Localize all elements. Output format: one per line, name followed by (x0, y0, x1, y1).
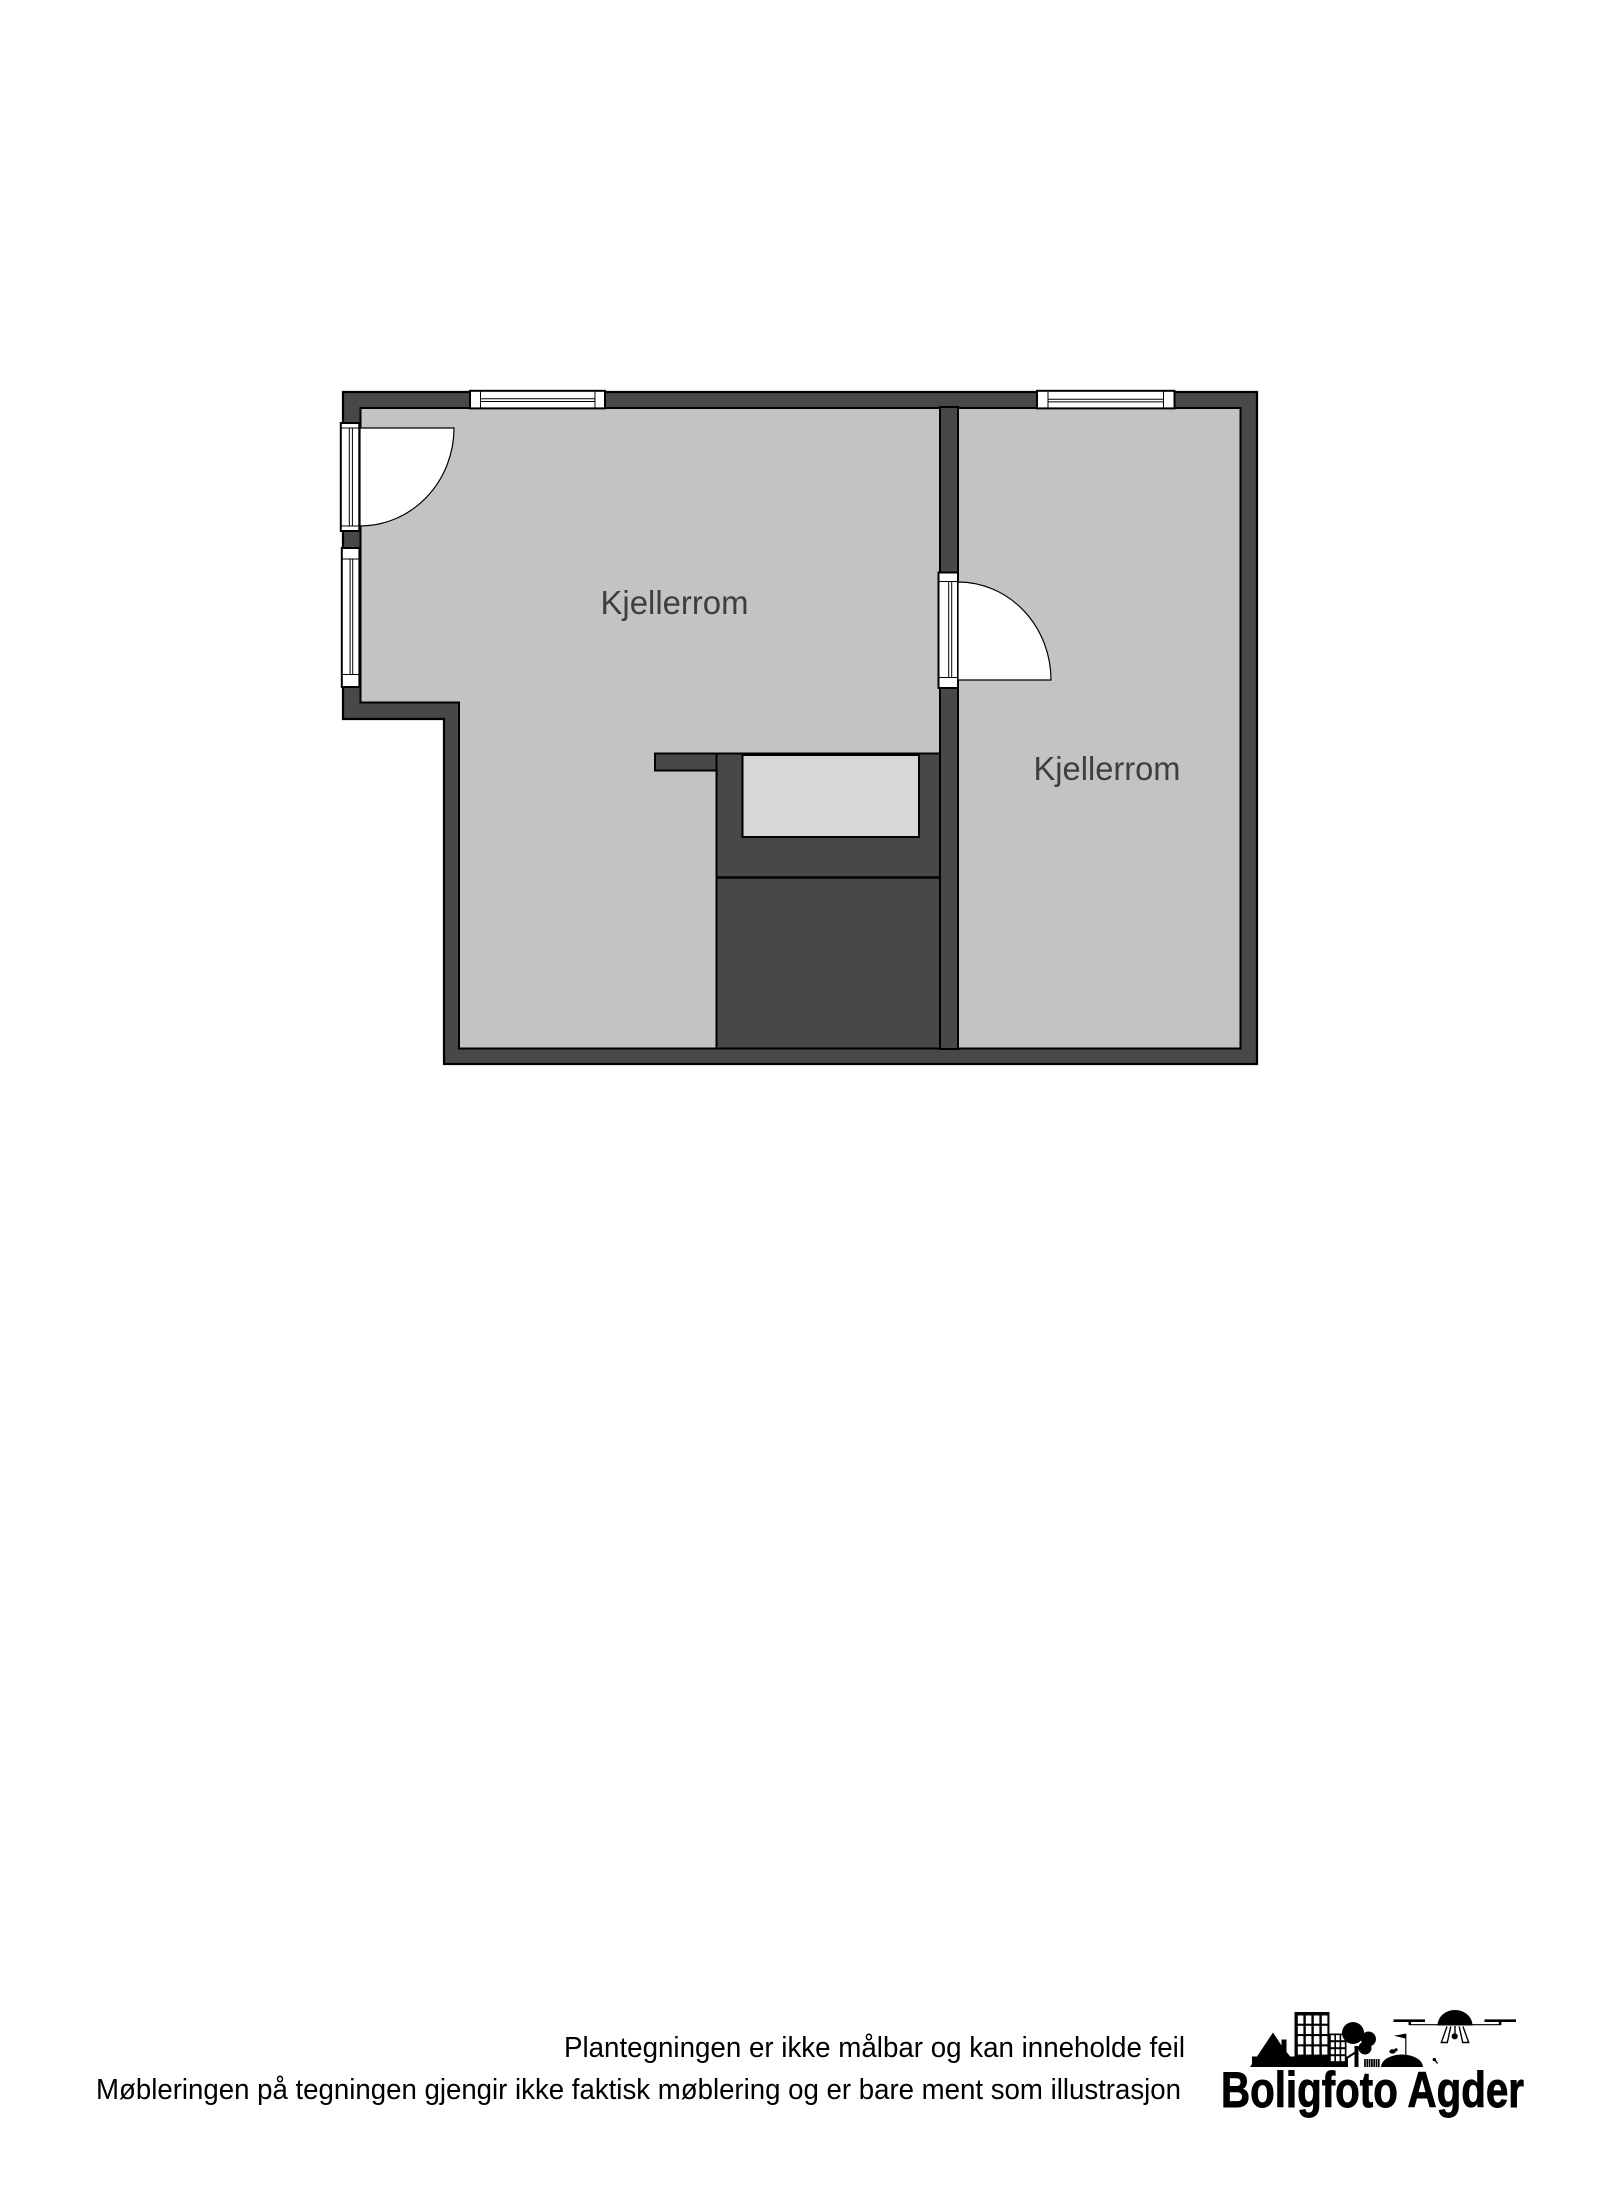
svg-text:Møbleringen på tegningen gjeng: Møbleringen på tegningen gjengir ikke fa… (96, 2074, 1181, 2106)
svg-text:Kjellerrom: Kjellerrom (1034, 751, 1181, 788)
svg-text:Kjellerrom: Kjellerrom (601, 585, 749, 622)
svg-text:Boligfoto Agder: Boligfoto Agder (1221, 2062, 1524, 2118)
svg-text:Plantegningen er ikke målbar o: Plantegningen er ikke målbar og kan inne… (564, 2032, 1185, 2064)
